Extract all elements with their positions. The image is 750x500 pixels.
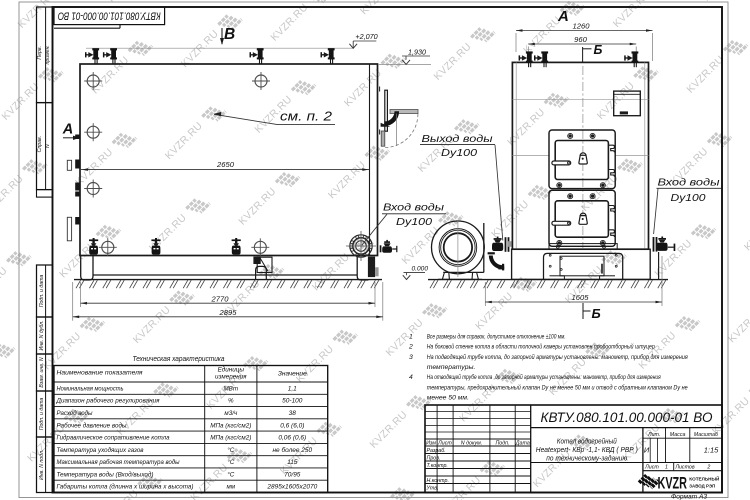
svg-text:70/95: 70/95 xyxy=(284,471,301,478)
svg-text:°С: °С xyxy=(227,458,235,466)
svg-text:960: 960 xyxy=(574,35,587,44)
svg-text:Подп. и дата: Подп. и дата xyxy=(39,398,45,431)
svg-text:Справ.: Справ. xyxy=(37,136,43,153)
svg-text:Единицы: Единицы xyxy=(218,366,245,374)
svg-text:%: % xyxy=(228,398,234,405)
svg-text:Подп.: Подп. xyxy=(495,440,509,446)
svg-text:KVZR.RU: KVZR.RU xyxy=(611,0,653,30)
svg-text:Выход воды: Выход воды xyxy=(422,133,493,145)
svg-text:Температура уходящих газов: Температура уходящих газов xyxy=(57,446,145,454)
svg-text:Разраб.: Разраб. xyxy=(427,448,446,454)
svg-text:KVZR.RU: KVZR.RU xyxy=(0,173,26,215)
svg-text:не более 250: не более 250 xyxy=(272,446,312,454)
svg-text:Лист: Лист xyxy=(437,440,452,446)
svg-text:Вход воды: Вход воды xyxy=(383,202,444,214)
svg-text:Масса: Масса xyxy=(670,432,686,438)
svg-text:1,930: 1,930 xyxy=(408,47,426,56)
svg-text:Б: Б xyxy=(592,306,601,321)
svg-text:А: А xyxy=(62,122,73,138)
svg-text:Dy100: Dy100 xyxy=(396,216,432,228)
svg-text:KVZR.RU: KVZR.RU xyxy=(637,330,679,372)
svg-text:МПа (кгс/см2): МПа (кгс/см2) xyxy=(210,435,251,442)
svg-text:Номинальная мощность: Номинальная мощность xyxy=(57,385,125,392)
svg-text:Т.контр.: Т.контр. xyxy=(427,463,448,469)
svg-text:Формат А3: Формат А3 xyxy=(671,494,707,500)
svg-text:KVZR.RU: KVZR.RU xyxy=(359,0,401,17)
svg-text:Подп. и дата: Подп. и дата xyxy=(39,275,45,308)
svg-text:0,6 (6,0): 0,6 (6,0) xyxy=(280,422,304,429)
svg-text:м3/ч: м3/ч xyxy=(224,410,238,417)
svg-text:Габариты котла (длинна х ширин: Габариты котла (длинна х ширина х высота… xyxy=(57,483,194,491)
svg-text:KVZR.RU: KVZR.RU xyxy=(490,199,532,241)
svg-text:Все размеры для справок, допус: Все размеры для справок, допустимое откл… xyxy=(427,333,566,341)
svg-text:2650: 2650 xyxy=(216,160,235,169)
svg-text:KVZR.RU: KVZR.RU xyxy=(163,120,205,162)
svg-text:KVZR.RU: KVZR.RU xyxy=(237,186,279,228)
svg-text:см. п. 2: см. п. 2 xyxy=(280,110,332,124)
svg-text:2770: 2770 xyxy=(211,294,230,303)
svg-text:Утв.: Утв. xyxy=(427,485,439,491)
svg-text:KVZR.RU: KVZR.RU xyxy=(368,409,410,451)
svg-text:N докум.: N докум. xyxy=(461,440,482,446)
svg-text:примен.: примен. xyxy=(45,45,51,64)
svg-text:1,1: 1,1 xyxy=(288,385,297,392)
svg-text:КВТУ.080.101.00.000-01 ВО: КВТУ.080.101.00.000-01 ВО xyxy=(541,410,713,425)
svg-text:38: 38 xyxy=(289,410,297,417)
svg-text:Инв. N дубл.: Инв. N дубл. xyxy=(39,320,45,350)
svg-text:Диапазон рабочего регулировани: Диапазон рабочего регулирования xyxy=(56,397,160,405)
svg-text:Dy100: Dy100 xyxy=(671,192,706,204)
svg-text:KVZR.RU: KVZR.RU xyxy=(0,81,42,123)
svg-text:Котел водогрейный: Котел водогрейный xyxy=(557,437,617,445)
svg-text:Изм: Изм xyxy=(426,440,436,446)
svg-text:Техническая характеристика: Техническая характеристика xyxy=(133,354,225,363)
svg-text:50-100: 50-100 xyxy=(282,398,303,405)
svg-text:измерения: измерения xyxy=(215,374,247,381)
svg-text:KVZR.RU: KVZR.RU xyxy=(432,41,474,83)
svg-text:N: N xyxy=(45,144,51,148)
svg-text:МПа (кгс/см2): МПа (кгс/см2) xyxy=(210,422,251,429)
svg-text:Б: Б xyxy=(594,43,603,57)
svg-text:1:15: 1:15 xyxy=(704,446,719,455)
svg-text:мм: мм xyxy=(226,484,235,491)
svg-text:4: 4 xyxy=(409,374,413,381)
svg-text:МВт: МВт xyxy=(223,385,238,392)
svg-text:2: 2 xyxy=(408,344,413,351)
svg-text:В: В xyxy=(224,26,235,43)
svg-text:3: 3 xyxy=(409,354,413,361)
svg-text:температуры.: температуры. xyxy=(427,364,476,371)
svg-text:115: 115 xyxy=(287,459,298,466)
svg-text:KVZR.RU: KVZR.RU xyxy=(327,160,369,202)
svg-text:KVZR.RU: KVZR.RU xyxy=(685,54,727,96)
svg-text:На подводящей трубе котла, д: На подводящей трубе котла, до запорной а… xyxy=(427,353,688,361)
svg-text:°С: °С xyxy=(227,446,235,454)
svg-text:1605: 1605 xyxy=(572,293,590,302)
svg-text:°С: °С xyxy=(227,470,235,478)
svg-text:менее 50 мм.: менее 50 мм. xyxy=(427,394,469,401)
svg-text:Н.контр.: Н.контр. xyxy=(427,478,449,484)
svg-text:0,06 (0,6): 0,06 (0,6) xyxy=(278,435,306,442)
svg-text:KVZR.RU: KVZR.RU xyxy=(269,2,311,44)
svg-text:2: 2 xyxy=(706,465,710,471)
svg-text:1: 1 xyxy=(665,465,668,471)
svg-text:На боковой стенке котла в обла: На боковой стенке котла в области топочн… xyxy=(427,343,655,351)
svg-text:И: И xyxy=(644,446,650,455)
svg-text:0.000: 0.000 xyxy=(412,265,429,272)
svg-text:А: А xyxy=(557,8,569,25)
svg-text:Инв. N подл.: Инв. N подл. xyxy=(39,450,45,480)
svg-text:+2,070: +2,070 xyxy=(355,32,377,41)
svg-text:Расход воды: Расход воды xyxy=(57,409,93,417)
svg-text:Масштаб: Масштаб xyxy=(694,432,719,438)
svg-text:1260: 1260 xyxy=(573,22,591,31)
svg-text:ЗАВОД РЭП: ЗАВОД РЭП xyxy=(689,483,715,489)
svg-text:Дата: Дата xyxy=(515,440,530,446)
svg-text:Лит.: Лит. xyxy=(647,432,660,438)
svg-text:Температура воды (Вход/выход): Температура воды (Вход/выход) xyxy=(57,470,154,478)
svg-text:Гидравлическое сопративление к: Гидравлическое сопративление котла xyxy=(57,434,170,442)
svg-text:KVZR.RU: KVZR.RU xyxy=(743,212,750,254)
svg-text:KVZR.RU: KVZR.RU xyxy=(131,304,173,346)
svg-text:Значение: Значение xyxy=(278,371,307,378)
svg-text:KVZR.RU: KVZR.RU xyxy=(295,344,337,386)
svg-text:KVZR.RU: KVZR.RU xyxy=(384,317,426,359)
svg-text:KVZR.RU: KVZR.RU xyxy=(727,304,750,346)
svg-text:Лист: Лист xyxy=(644,465,659,471)
svg-text:КОТЕЛЬНЫЙ: КОТЕЛЬНЫЙ xyxy=(689,475,719,483)
svg-text:КВТУ.080.101.00.000-01 ВО: КВТУ.080.101.00.000-01 ВО xyxy=(57,9,160,21)
svg-text:Heatexpert- КВр -1,1- КВД ( РВ: Heatexpert- КВр -1,1- КВД ( РВР ) xyxy=(536,447,638,454)
svg-text:Наименование показателя: Наименование показателя xyxy=(57,370,143,377)
svg-text:Пров.: Пров. xyxy=(427,455,441,461)
svg-text:Максимальная рабочая температу: Максимальная рабочая температура воды xyxy=(57,458,180,466)
svg-text:Вход воды: Вход воды xyxy=(658,177,720,189)
svg-text:Листов: Листов xyxy=(674,465,695,471)
svg-text:Рабочее давление воды: Рабочее давление воды xyxy=(57,421,127,429)
svg-text:KVZR.RU: KVZR.RU xyxy=(474,291,516,333)
svg-text:2895: 2895 xyxy=(219,308,238,317)
svg-text:2895х1605х2070: 2895х1605х2070 xyxy=(266,484,317,491)
svg-text:На отводящей трубе котла ,до з: На отводящей трубе котла ,до запорной ар… xyxy=(427,373,661,381)
svg-text:KVZR: KVZR xyxy=(658,474,688,492)
svg-text:KVZR.RU: KVZR.RU xyxy=(0,265,10,307)
svg-text:по техническому-заданию: по техническому-заданию xyxy=(546,454,628,462)
svg-text:Dy100: Dy100 xyxy=(441,147,477,159)
svg-text:Взам. инв. N: Взам. инв. N xyxy=(39,357,45,387)
svg-text:температуры, предохранительный: температуры, предохранительный клапан Dy… xyxy=(427,383,688,391)
svg-text:Перв.: Перв. xyxy=(37,46,43,60)
svg-text:1: 1 xyxy=(409,334,413,341)
